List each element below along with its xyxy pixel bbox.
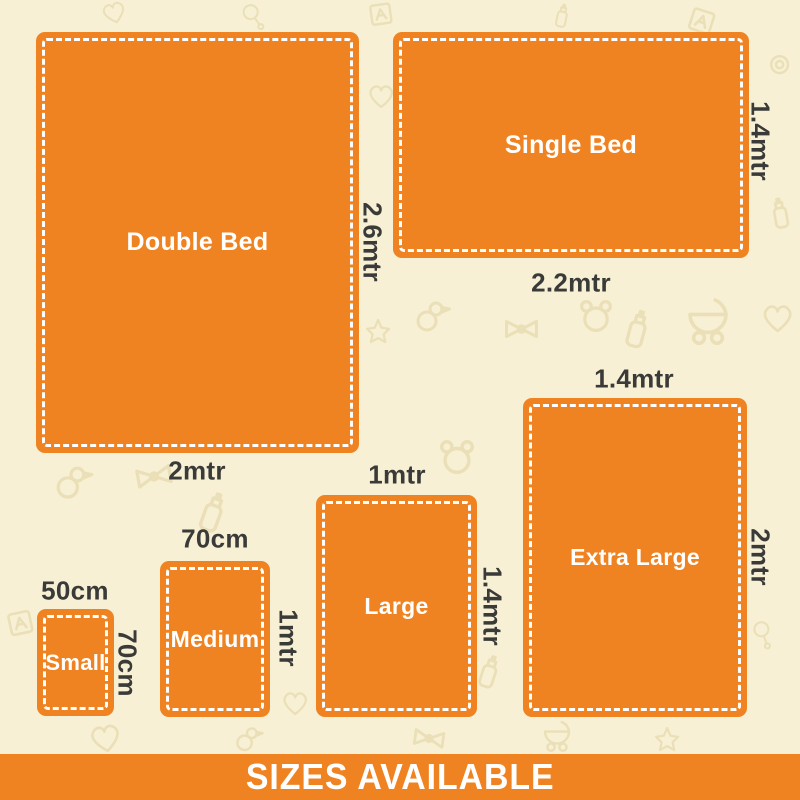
size-name-single-bed: Single Bed (505, 131, 637, 160)
height-label-double-bed: 2.6mtr (357, 202, 388, 282)
size-box-extra-large: Extra Large (523, 398, 747, 717)
height-label-medium: 1mtr (273, 609, 304, 667)
sizes-available-banner: SIZES AVAILABLE (0, 754, 800, 800)
size-box-single-bed: Single Bed (393, 32, 749, 258)
size-name-medium: Medium (171, 626, 260, 653)
width-label-double-bed: 2mtr (168, 456, 226, 487)
banner-title: SIZES AVAILABLE (246, 756, 555, 798)
width-label-large: 1mtr (368, 460, 426, 491)
height-label-small: 70cm (112, 629, 143, 697)
size-chart-infographic: Double Bed 2mtr 2.6mtr Single Bed 2.2mtr… (0, 0, 800, 800)
height-label-large: 1.4mtr (477, 566, 508, 646)
size-name-extra-large: Extra Large (570, 544, 700, 571)
height-label-extra-large: 2mtr (745, 528, 776, 586)
size-box-double-bed: Double Bed (36, 32, 359, 453)
size-name-double-bed: Double Bed (127, 228, 269, 257)
width-label-extra-large: 1.4mtr (594, 364, 674, 395)
size-box-small: Small (37, 609, 114, 716)
size-name-small: Small (45, 650, 105, 676)
size-box-large: Large (316, 495, 477, 717)
width-label-single-bed: 2.2mtr (531, 268, 611, 299)
width-label-small: 50cm (41, 576, 109, 607)
size-name-large: Large (364, 593, 428, 620)
size-box-medium: Medium (160, 561, 270, 717)
height-label-single-bed: 1.4mtr (745, 101, 776, 181)
width-label-medium: 70cm (181, 524, 249, 555)
